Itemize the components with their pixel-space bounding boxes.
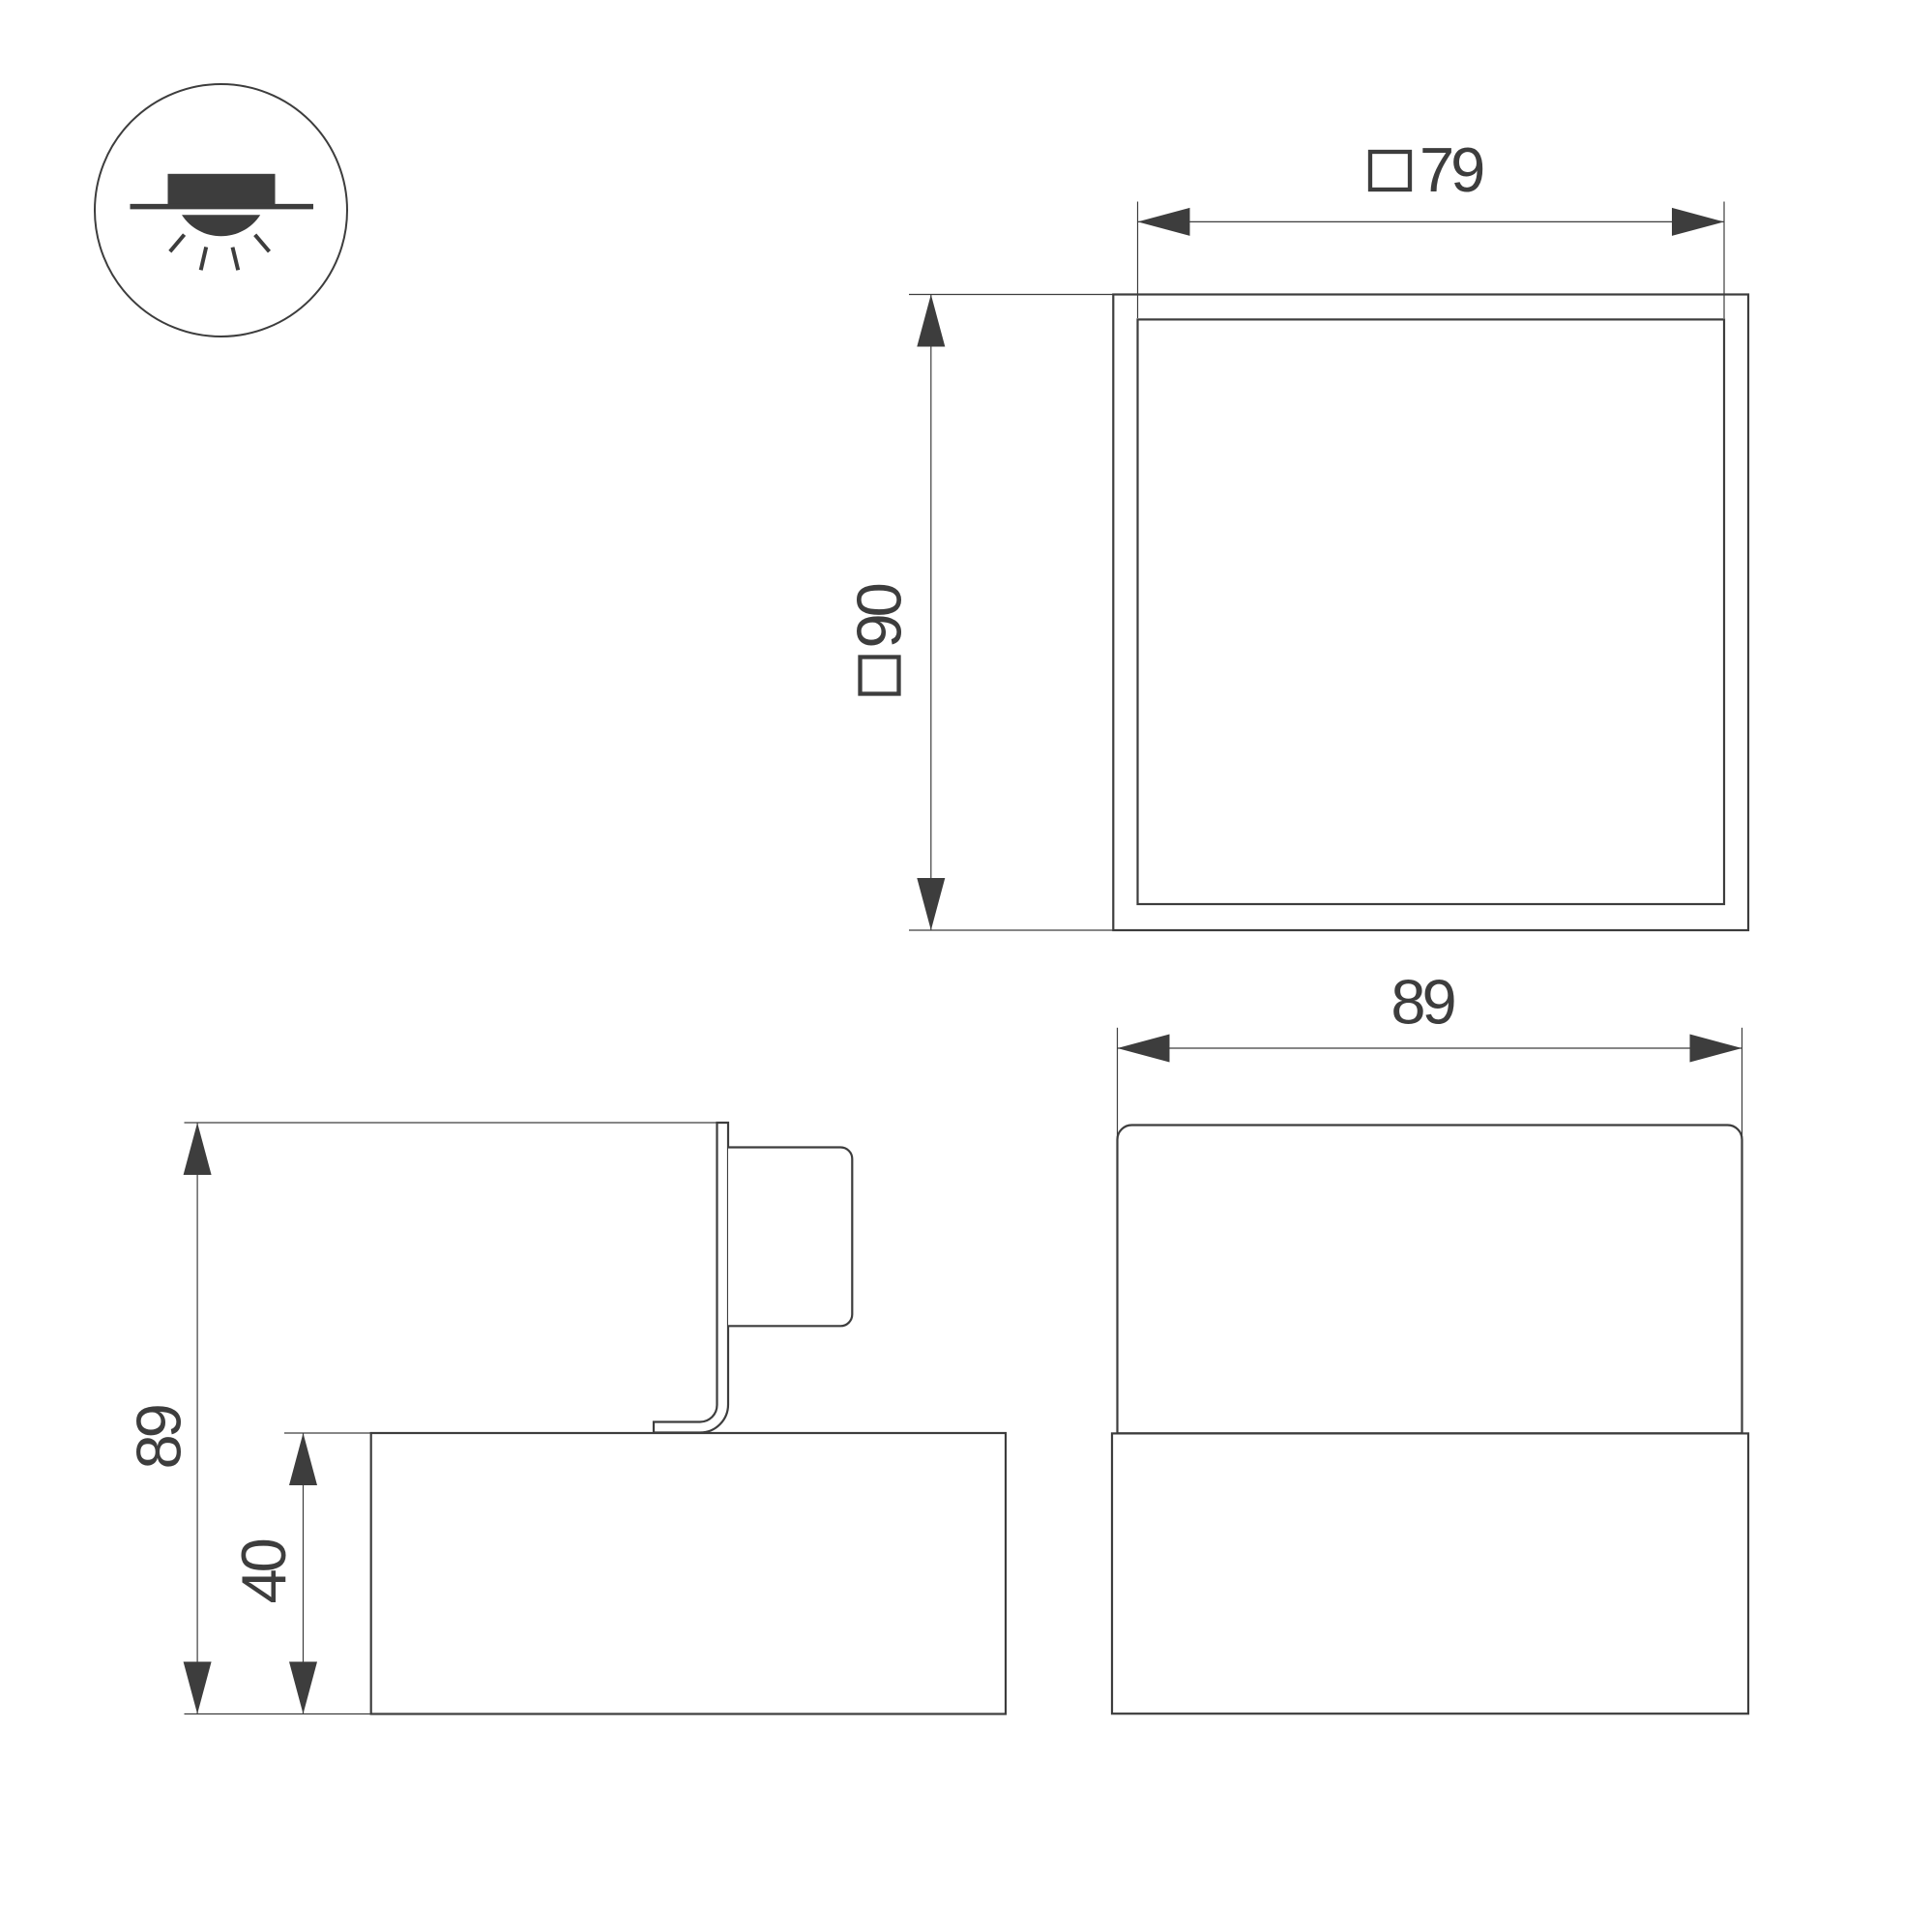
svg-text:89: 89 (1390, 967, 1454, 1038)
svg-text:90: 90 (844, 584, 915, 648)
svg-text:79: 79 (1420, 134, 1483, 205)
svg-text:40: 40 (228, 1539, 299, 1603)
svg-text:89: 89 (123, 1405, 193, 1469)
